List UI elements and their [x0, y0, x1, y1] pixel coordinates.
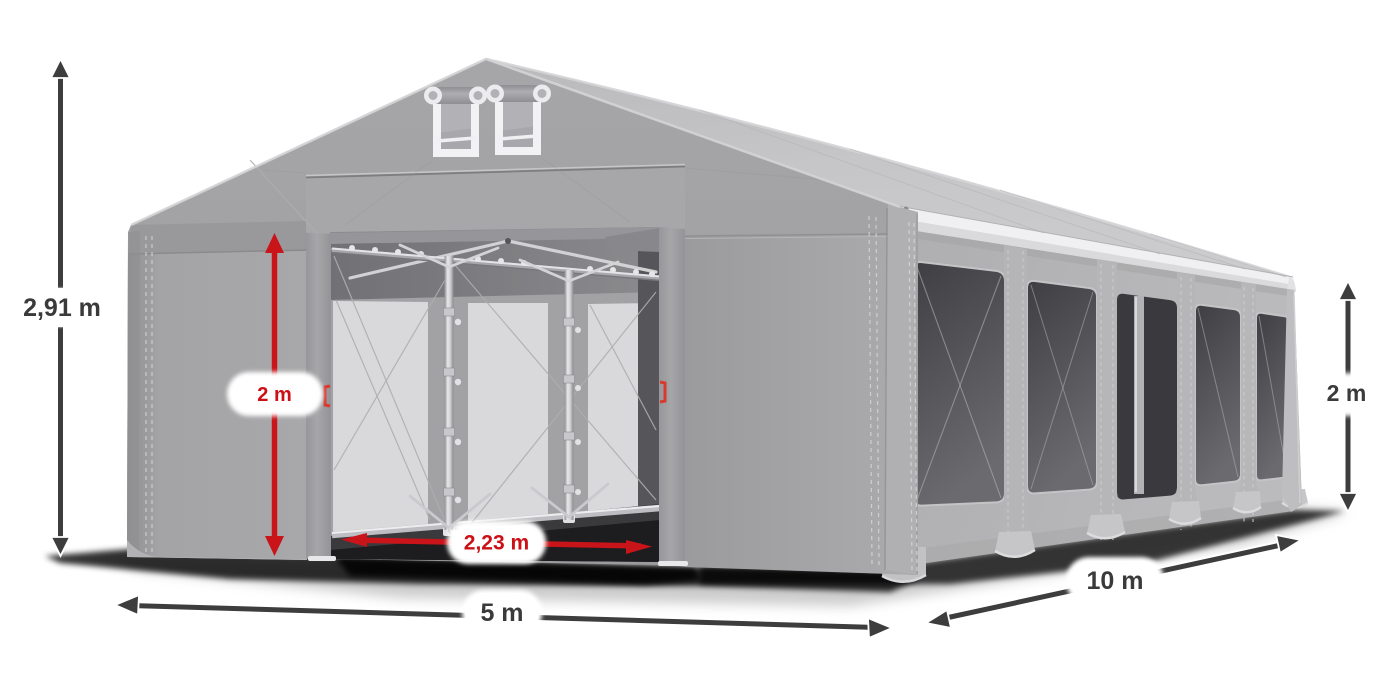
- svg-text:2 m: 2 m: [1327, 380, 1367, 406]
- svg-text:2,23 m: 2,23 m: [464, 532, 529, 555]
- svg-text:5 m: 5 m: [480, 599, 523, 627]
- svg-text:10 m: 10 m: [1087, 567, 1144, 595]
- svg-text:2 m: 2 m: [257, 384, 291, 406]
- svg-text:2,91 m: 2,91 m: [23, 294, 101, 322]
